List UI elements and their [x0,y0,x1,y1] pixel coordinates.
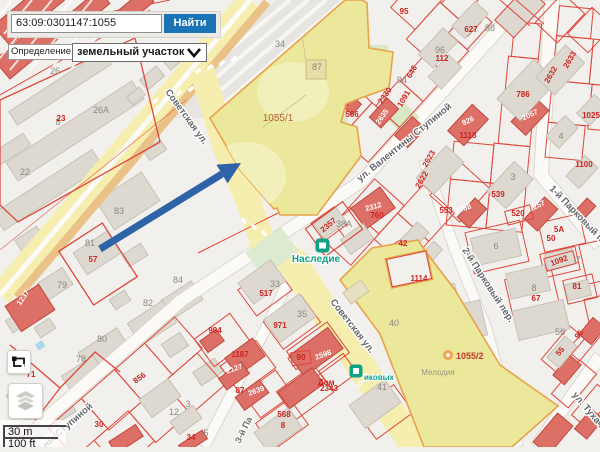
svg-text:98: 98 [485,23,495,33]
svg-text:84: 84 [173,275,183,285]
svg-text:Наследие: Наследие [292,254,341,265]
svg-text:57: 57 [89,255,98,264]
svg-text:568: 568 [277,410,291,419]
svg-text:иковых: иковых [364,373,394,382]
svg-text:Мелодия: Мелодия [421,368,454,377]
svg-text:5: 5 [203,428,208,438]
svg-text:79: 79 [57,280,67,290]
svg-text:83: 83 [114,206,124,216]
svg-text:26: 26 [50,66,60,76]
svg-text:6: 6 [493,241,498,251]
svg-text:80: 80 [97,334,107,344]
svg-text:627: 627 [464,25,478,34]
svg-text:1055/1: 1055/1 [263,113,294,124]
svg-text:539: 539 [491,190,505,199]
svg-text:95: 95 [400,7,409,16]
svg-text:12: 12 [169,407,179,417]
svg-text:553: 553 [439,206,453,215]
svg-text:81: 81 [573,282,582,291]
svg-text:760: 760 [370,211,384,220]
svg-text:1118: 1118 [460,131,477,140]
svg-text:4: 4 [558,131,563,141]
svg-text:994: 994 [208,326,222,335]
svg-text:3: 3 [510,172,515,182]
svg-text:67: 67 [532,294,541,303]
svg-text:22: 22 [20,167,30,177]
svg-text:30: 30 [95,420,104,429]
svg-text:41: 41 [377,382,387,392]
svg-text:34: 34 [187,433,196,442]
svg-text:5А: 5А [554,225,564,234]
svg-text:786: 786 [516,90,530,99]
svg-text:8: 8 [531,283,536,293]
svg-text:82: 82 [143,298,153,308]
svg-text:81: 81 [85,238,95,248]
svg-text:1100: 1100 [575,160,593,169]
svg-text:112: 112 [436,54,449,63]
svg-text:1055/2: 1055/2 [456,351,484,361]
svg-text:50: 50 [547,234,556,243]
svg-text:90: 90 [297,353,306,362]
svg-text:971: 971 [273,321,287,330]
svg-text:35: 35 [297,309,307,319]
svg-text:34: 34 [275,39,285,49]
svg-text:1114: 1114 [411,274,428,283]
svg-text:23: 23 [57,114,66,123]
svg-text:566: 566 [345,110,359,119]
svg-text:42: 42 [399,239,408,248]
svg-text:520: 520 [511,209,525,218]
svg-text:Дом: Дом [318,378,335,387]
svg-text:38A: 38A [336,219,352,229]
svg-text:56: 56 [555,327,565,337]
svg-text:1025: 1025 [582,111,600,120]
svg-text:8: 8 [281,421,286,430]
svg-text:3: 3 [185,399,190,409]
svg-text:26A: 26A [93,105,109,115]
svg-text:33: 33 [270,279,280,289]
svg-text:40: 40 [389,318,399,328]
svg-text:1187: 1187 [231,350,249,359]
svg-text:517: 517 [259,289,273,298]
svg-text:87: 87 [312,62,322,72]
svg-text:78: 78 [76,354,86,364]
svg-text:87: 87 [236,386,245,395]
